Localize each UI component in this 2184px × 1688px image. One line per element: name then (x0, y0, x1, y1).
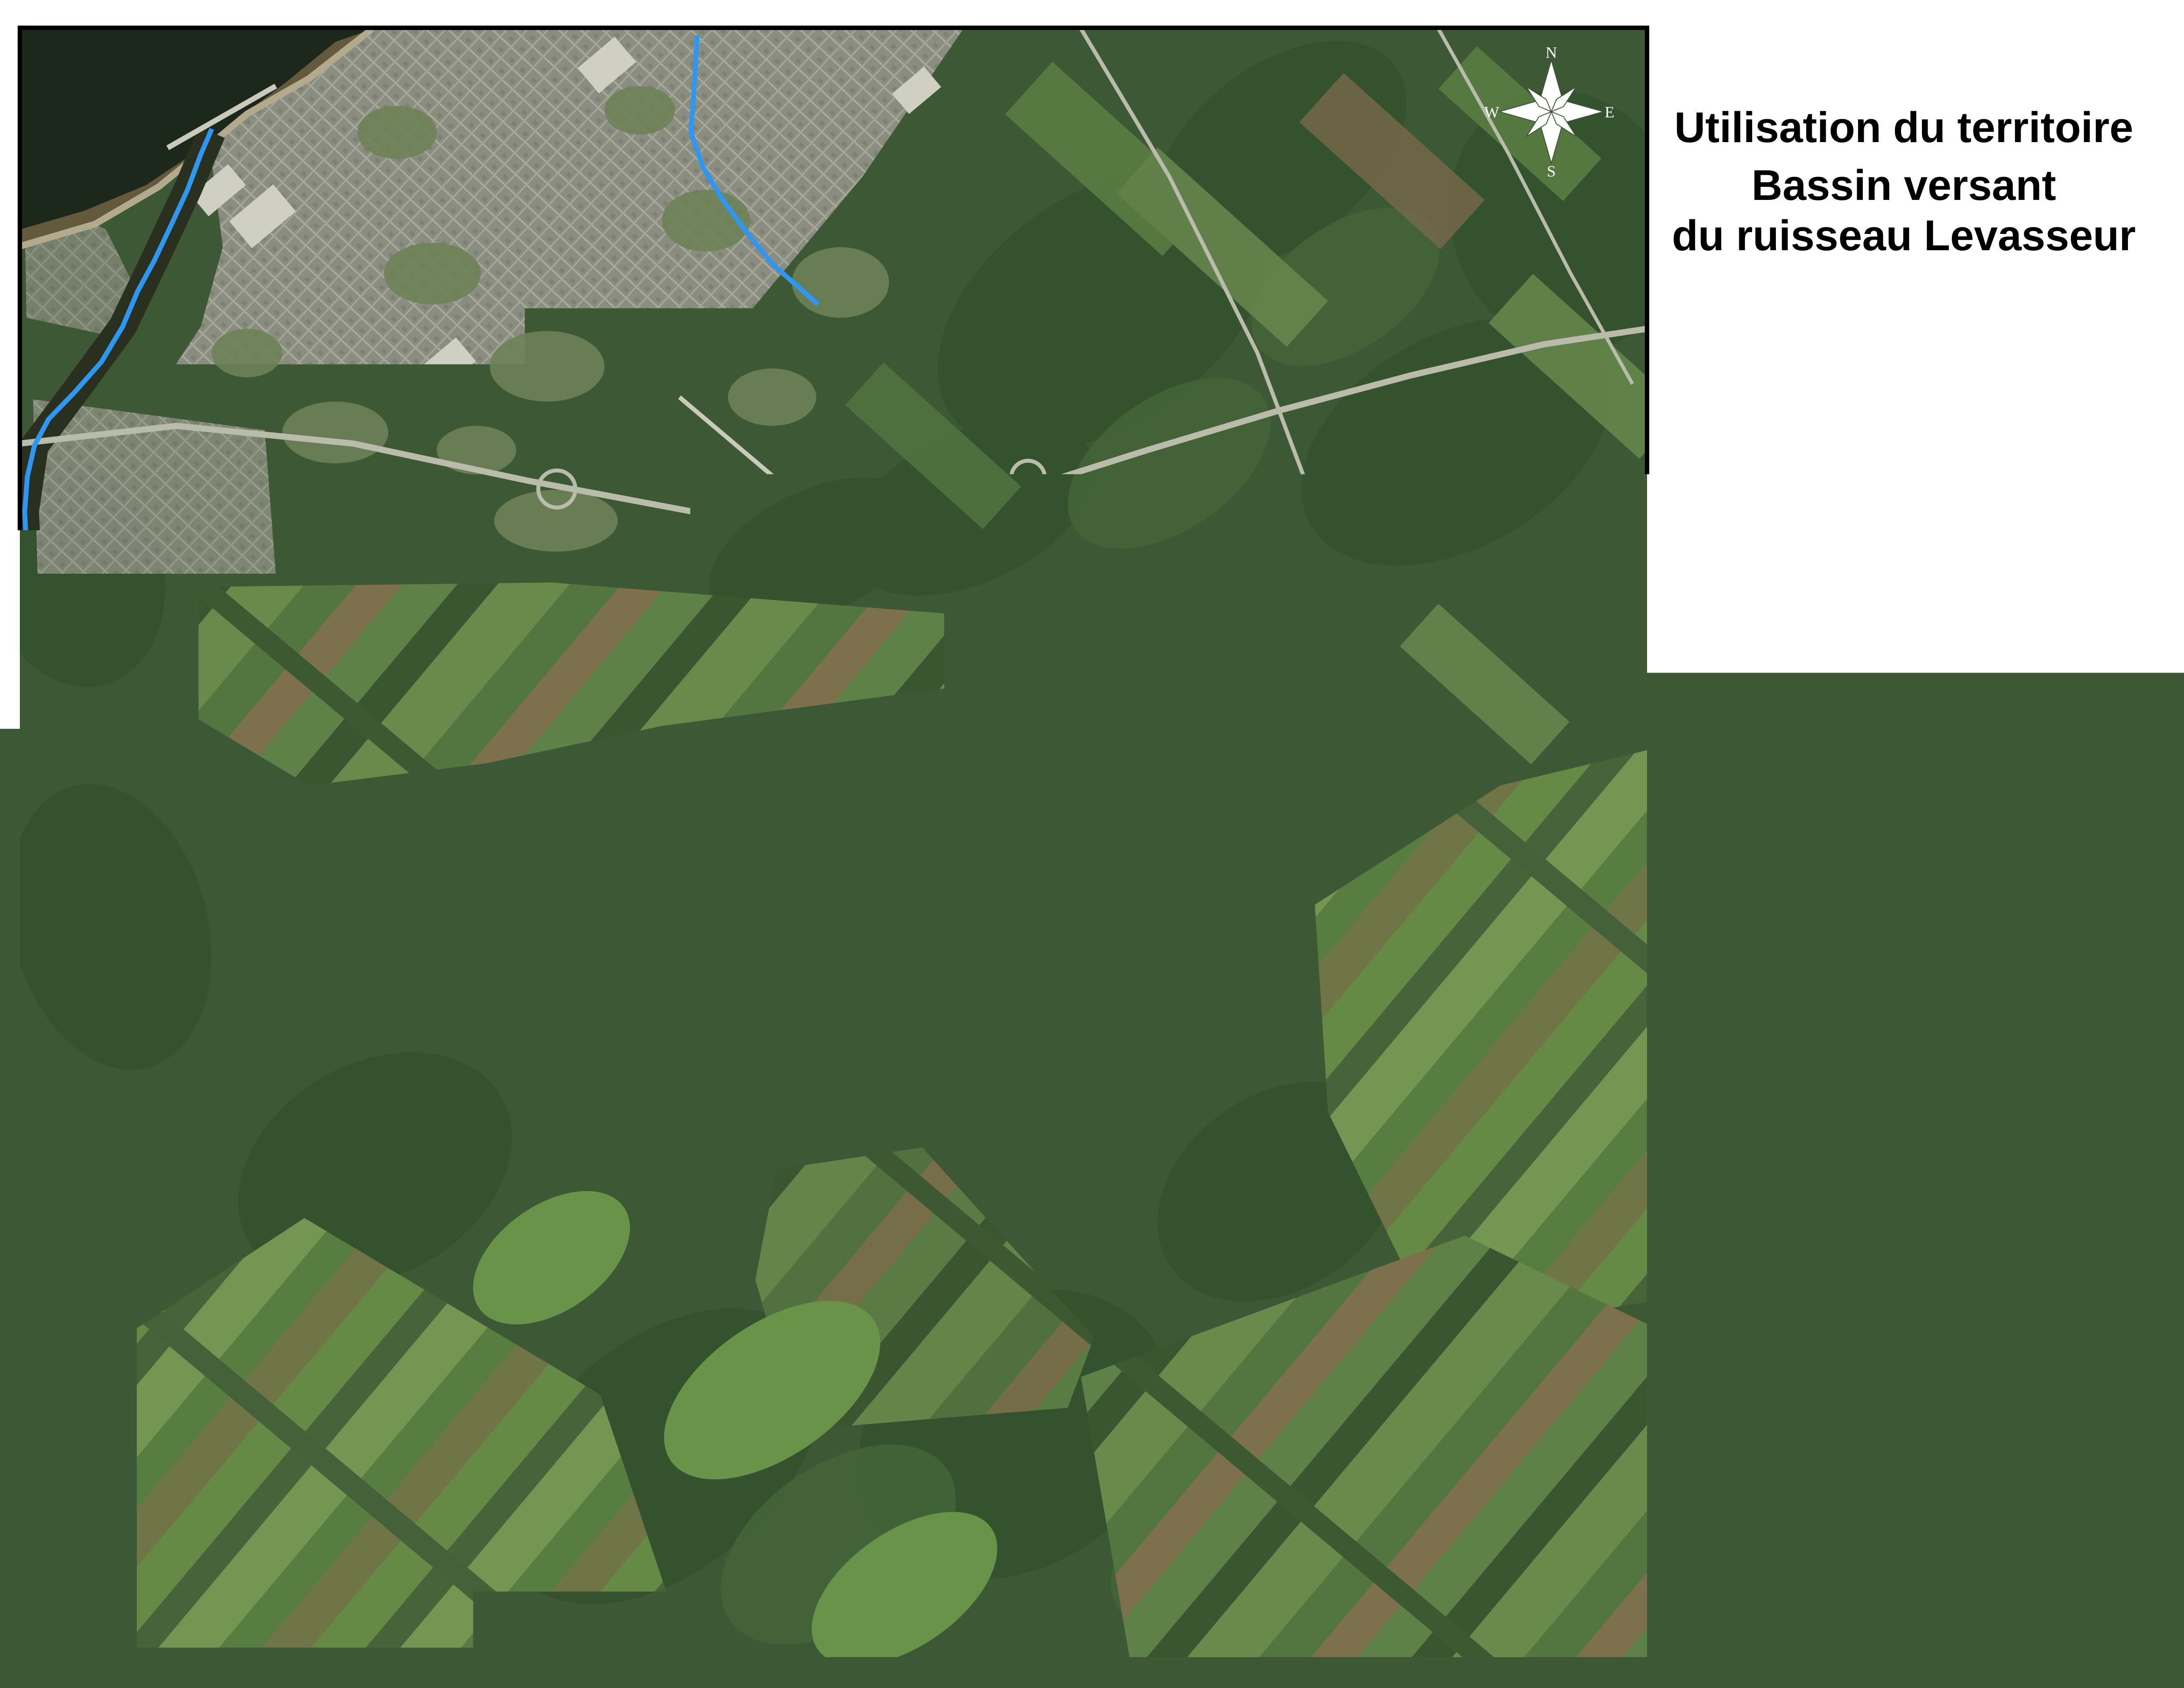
svg-text:Projection : NAD 1983 MTM6: Projection : NAD 1983 MTM6 (1658, 1604, 1939, 1628)
svg-text:E: E (1605, 103, 1614, 121)
svg-text:Source : Gouvernement du Québe: Source : Gouvernement du Québec, OBVNEBS… (1658, 1573, 2128, 1597)
svg-text:0: 0 (29, 1565, 42, 1592)
svg-text:Milieu humide: Milieu humide (1804, 1124, 1984, 1157)
svg-text:du ruisseau Levasseur: du ruisseau Levasseur (1672, 211, 2135, 259)
svg-text:ruisseau Levasseur: ruisseau Levasseur (1804, 785, 2056, 817)
svg-text:V: V (1950, 1349, 2033, 1485)
svg-text:N: N (1546, 44, 1557, 61)
svg-text:USGS, AeroGRID, IGN, and the G: USGS, AeroGRID, IGN, and the GIS User Co… (832, 1631, 1359, 1655)
svg-text:Forestier: Forestier (1804, 1069, 1919, 1102)
svg-text:2 Km: 2 Km (482, 1565, 538, 1592)
svg-text:Bassin versant: Bassin versant (1804, 751, 1995, 784)
svg-text:Cours d'eau: Cours d'eau (1804, 700, 1960, 733)
svg-text:1:35 000: 1:35 000 (204, 1628, 310, 1659)
svg-text:Utilisation du territoire: Utilisation du territoire (1674, 103, 2133, 151)
svg-text:Coupe et régénération: Coupe et régénération (1804, 1013, 2094, 1046)
svg-text:0,5: 0,5 (130, 1565, 163, 1592)
svg-text:1: 1 (252, 1565, 265, 1592)
svg-text:S: S (1547, 162, 1556, 180)
svg-text:Agricole: Agricole (1804, 846, 1909, 879)
svg-text:W: W (1484, 103, 1499, 121)
svg-text:Légende: Légende (1704, 625, 1878, 672)
svg-text:Source: Esri, Maxar, GeoEye, E: Source: Esri, Maxar, GeoEye, Earthstar G… (832, 1601, 1608, 1625)
svg-text:Bas-Saint-Laurent: Bas-Saint-Laurent (1810, 1484, 2006, 1511)
svg-text:Aquatique: Aquatique (1804, 958, 1935, 990)
svg-text:Réalisation : OBVNEBSL, décemb: Réalisation : OBVNEBSL, décembre 2025 (1658, 1634, 2062, 1658)
svg-text:Bassin versant: Bassin versant (1752, 161, 2056, 209)
svg-text:Anthropique: Anthropique (1804, 902, 1961, 935)
